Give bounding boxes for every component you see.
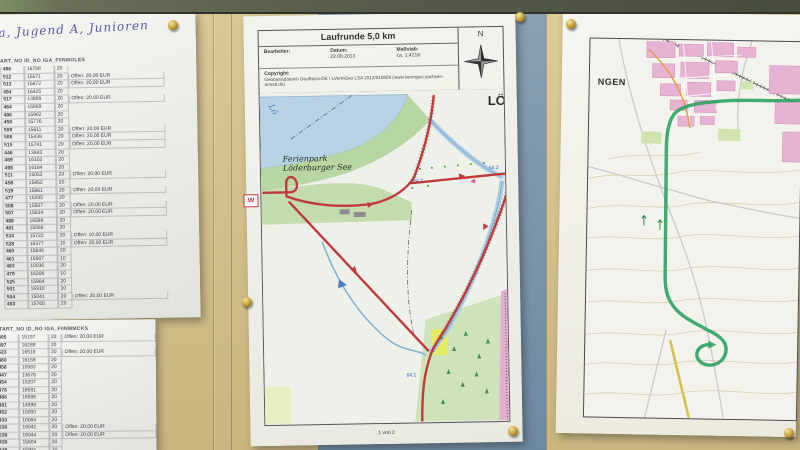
right-town-name-fragment: NGEN [598, 77, 626, 87]
map-frame: Laufrunde 5,0 km Bearbeiter: Datum: 22.0… [258, 26, 511, 426]
board-seam [231, 0, 232, 450]
topo-map-frame: NGEN [583, 37, 800, 421]
left-results-sheet-bottom: START_NO ID_NO IGA_F0NMMCKS 4051519720Of… [0, 319, 157, 450]
push-pin [515, 12, 525, 22]
route-map-page: Laufrunde 5,0 km Bearbeiter: Datum: 22.0… [243, 12, 522, 447]
ferienpark-label-line2: Löderburger See [283, 163, 352, 173]
push-pin [784, 428, 794, 438]
massstab-value: ca. 1:4216 [397, 52, 458, 59]
bearbeiter-label: Bearbeiter: [264, 48, 325, 55]
table-cell: 20 [49, 364, 63, 372]
table-row: 4491593120 [0, 446, 157, 450]
push-pin [168, 20, 178, 30]
compass-box: N [458, 27, 503, 90]
route-map-graphic [260, 89, 510, 424]
table-cell: 20 [49, 387, 63, 395]
table-cell: 20 [48, 334, 62, 342]
board-seam-highlight [214, 0, 215, 450]
results-table-top: 49616788205121567120Offen: 20,00 EUR5131… [0, 63, 194, 309]
push-pin [508, 426, 518, 436]
table-cell: 20 [49, 379, 63, 387]
topo-map-graphic [584, 38, 800, 420]
table-cell: 20 [49, 417, 63, 425]
table-cell: 20 [49, 409, 63, 417]
table-cell [72, 299, 168, 308]
datum-value: 22.08.2013 [330, 53, 391, 60]
table-cell: 20 [49, 424, 63, 432]
push-pin [242, 297, 252, 307]
table-cell: 20 [48, 349, 62, 357]
push-pin [566, 19, 576, 29]
results-table-bottom: 4051519720Offen: 20,00 EUR49716289205231… [0, 333, 157, 450]
town-name-fragment: LÖ [488, 93, 506, 108]
copyright-text: Geobasisdaten© GeoBasis-DE / LVermGeo LS… [264, 74, 454, 88]
table-cell: 20 [48, 342, 62, 350]
topo-map-page: NGEN [556, 11, 800, 437]
table-cell [63, 446, 157, 450]
table-cell: 20 [49, 394, 63, 402]
table-cell: 20 [49, 439, 63, 447]
table-cell: 15765 [28, 301, 58, 309]
table-cell: 20 [58, 301, 72, 309]
left-results-sheet-top: ga, Jugend A, Junioren ART_NO ID_NO IGA_… [0, 11, 201, 321]
table-cell: 20 [49, 372, 63, 380]
table-cell: 20 [49, 447, 63, 450]
table-cell: 20 [48, 357, 62, 365]
board-seam [546, 0, 547, 450]
route-start-marker: W [243, 194, 258, 207]
notice-board-photo: ga, Jugend A, Junioren ART_NO ID_NO IGA_… [0, 0, 800, 450]
table-header: START_NO ID_NO IGA_F0NMMCKS [0, 325, 156, 332]
board-top-frame [0, 0, 800, 14]
elevation-64-7: 64,7 [413, 178, 423, 184]
map-title-block: Laufrunde 5,0 km Bearbeiter: Datum: 22.0… [259, 27, 504, 94]
compass-rose-icon [459, 37, 504, 86]
table-cell: 20 [49, 432, 63, 440]
elevation-64-1: 64,1 [407, 372, 417, 378]
elevation-64-2: 64,2 [489, 165, 499, 171]
route-map-body: Lö Ferienpark Löderburger See LÖ 64,7 64… [260, 89, 510, 424]
table-cell: 463 [4, 302, 28, 310]
table-cell: 20 [49, 402, 63, 410]
page-number: 1 von 2 [265, 428, 509, 438]
